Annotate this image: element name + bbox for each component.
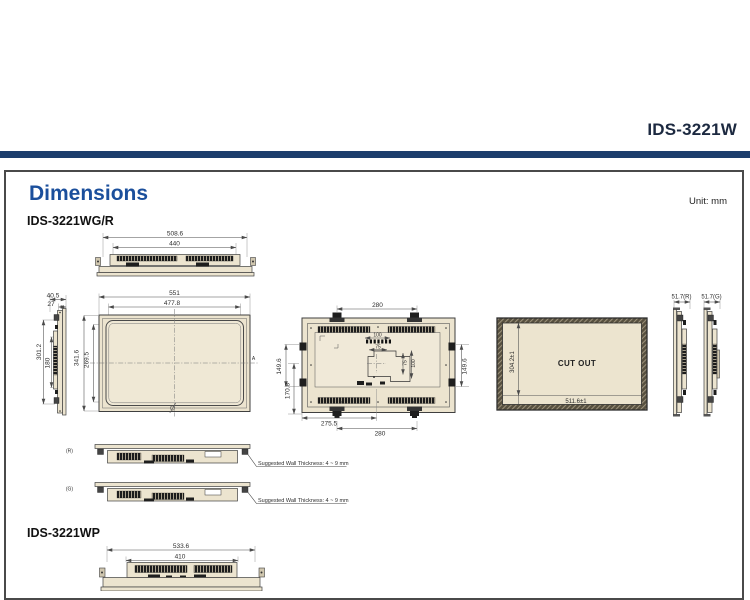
wgr-profile-g: 51.7(G) xyxy=(701,295,721,417)
wgr-front-view: 551 477.8 341.6 269.5 A xyxy=(74,290,259,417)
dim-vesa-100-v: 100 xyxy=(411,359,417,368)
wgr-profile-r: 51.7(R) xyxy=(671,295,691,417)
dim-wp-outer-width: 533.6 xyxy=(173,543,190,550)
dim-cutout-height: 304.2±1 xyxy=(510,351,516,373)
dim-rear-mount-width-bottom: 280 xyxy=(375,431,386,438)
dim-front-glass-width: 477.8 xyxy=(164,300,181,307)
dim-sideview-depth: 40.5 xyxy=(47,293,60,300)
wp-top-view: 533.6 410 xyxy=(100,543,265,591)
wall-section-g-tag: (G) xyxy=(66,487,74,493)
dim-sideview-front-depth: 27 xyxy=(47,301,55,308)
dim-vesa-75-h: 75 xyxy=(375,345,381,351)
dim-front-outer-height: 341.6 xyxy=(74,349,81,366)
wgr-side-view: 40.5 27 301.2 180 xyxy=(36,293,66,416)
wgr-rear-view: 280 149.6 170.8 149.6 275.5 280 100 75 7… xyxy=(276,302,469,438)
cutout-label: CUT OUT xyxy=(558,359,596,368)
dim-rear-mount-offset-left: 170.8 xyxy=(285,382,292,399)
dimension-drawings: 508.6 440 40.5 27 301.2 180 xyxy=(0,0,750,591)
dim-wp-inner-width: 410 xyxy=(175,554,186,561)
wall-section-g: (G) Suggested Wall Thickness: 4 ~ 9 mm xyxy=(66,483,349,504)
wgr-cutout-view: CUT OUT 304.2±1 511.6±1 xyxy=(497,318,647,410)
section-mark-a: A xyxy=(252,356,256,362)
wall-thickness-note-r: Suggested Wall Thickness: 4 ~ 9 mm xyxy=(258,461,349,467)
dim-topview-outer-width: 508.6 xyxy=(167,231,184,238)
wgr-top-view: 508.6 440 xyxy=(96,231,256,277)
wall-section-r: (R) Suggested Wall Thickness: 4 ~ 9 mm xyxy=(66,445,349,467)
dim-vesa-75-v: 75 xyxy=(403,360,409,366)
dim-sideview-inner-height: 180 xyxy=(45,357,52,368)
wall-section-r-tag: (R) xyxy=(66,449,73,455)
dim-rear-mount-width-top: 280 xyxy=(372,302,383,309)
dim-topview-inner-width: 440 xyxy=(169,241,180,248)
dim-vesa-100-h: 100 xyxy=(373,333,382,339)
dim-front-glass-height: 269.5 xyxy=(84,351,91,368)
dim-rear-mount-height-left: 149.6 xyxy=(276,358,283,375)
dim-rear-mount-height-right: 149.6 xyxy=(462,358,469,375)
dim-sideview-height: 301.2 xyxy=(36,343,43,360)
wall-thickness-note-g: Suggested Wall Thickness: 4 ~ 9 mm xyxy=(258,498,349,504)
dim-rear-offset-bottom: 275.5 xyxy=(321,421,338,428)
dim-profile-r-depth: 51.7(R) xyxy=(671,295,691,301)
dim-profile-g-depth: 51.7(G) xyxy=(701,295,721,301)
dim-cutout-width: 511.6±1 xyxy=(565,399,587,405)
dim-front-outer-width: 551 xyxy=(169,290,180,297)
